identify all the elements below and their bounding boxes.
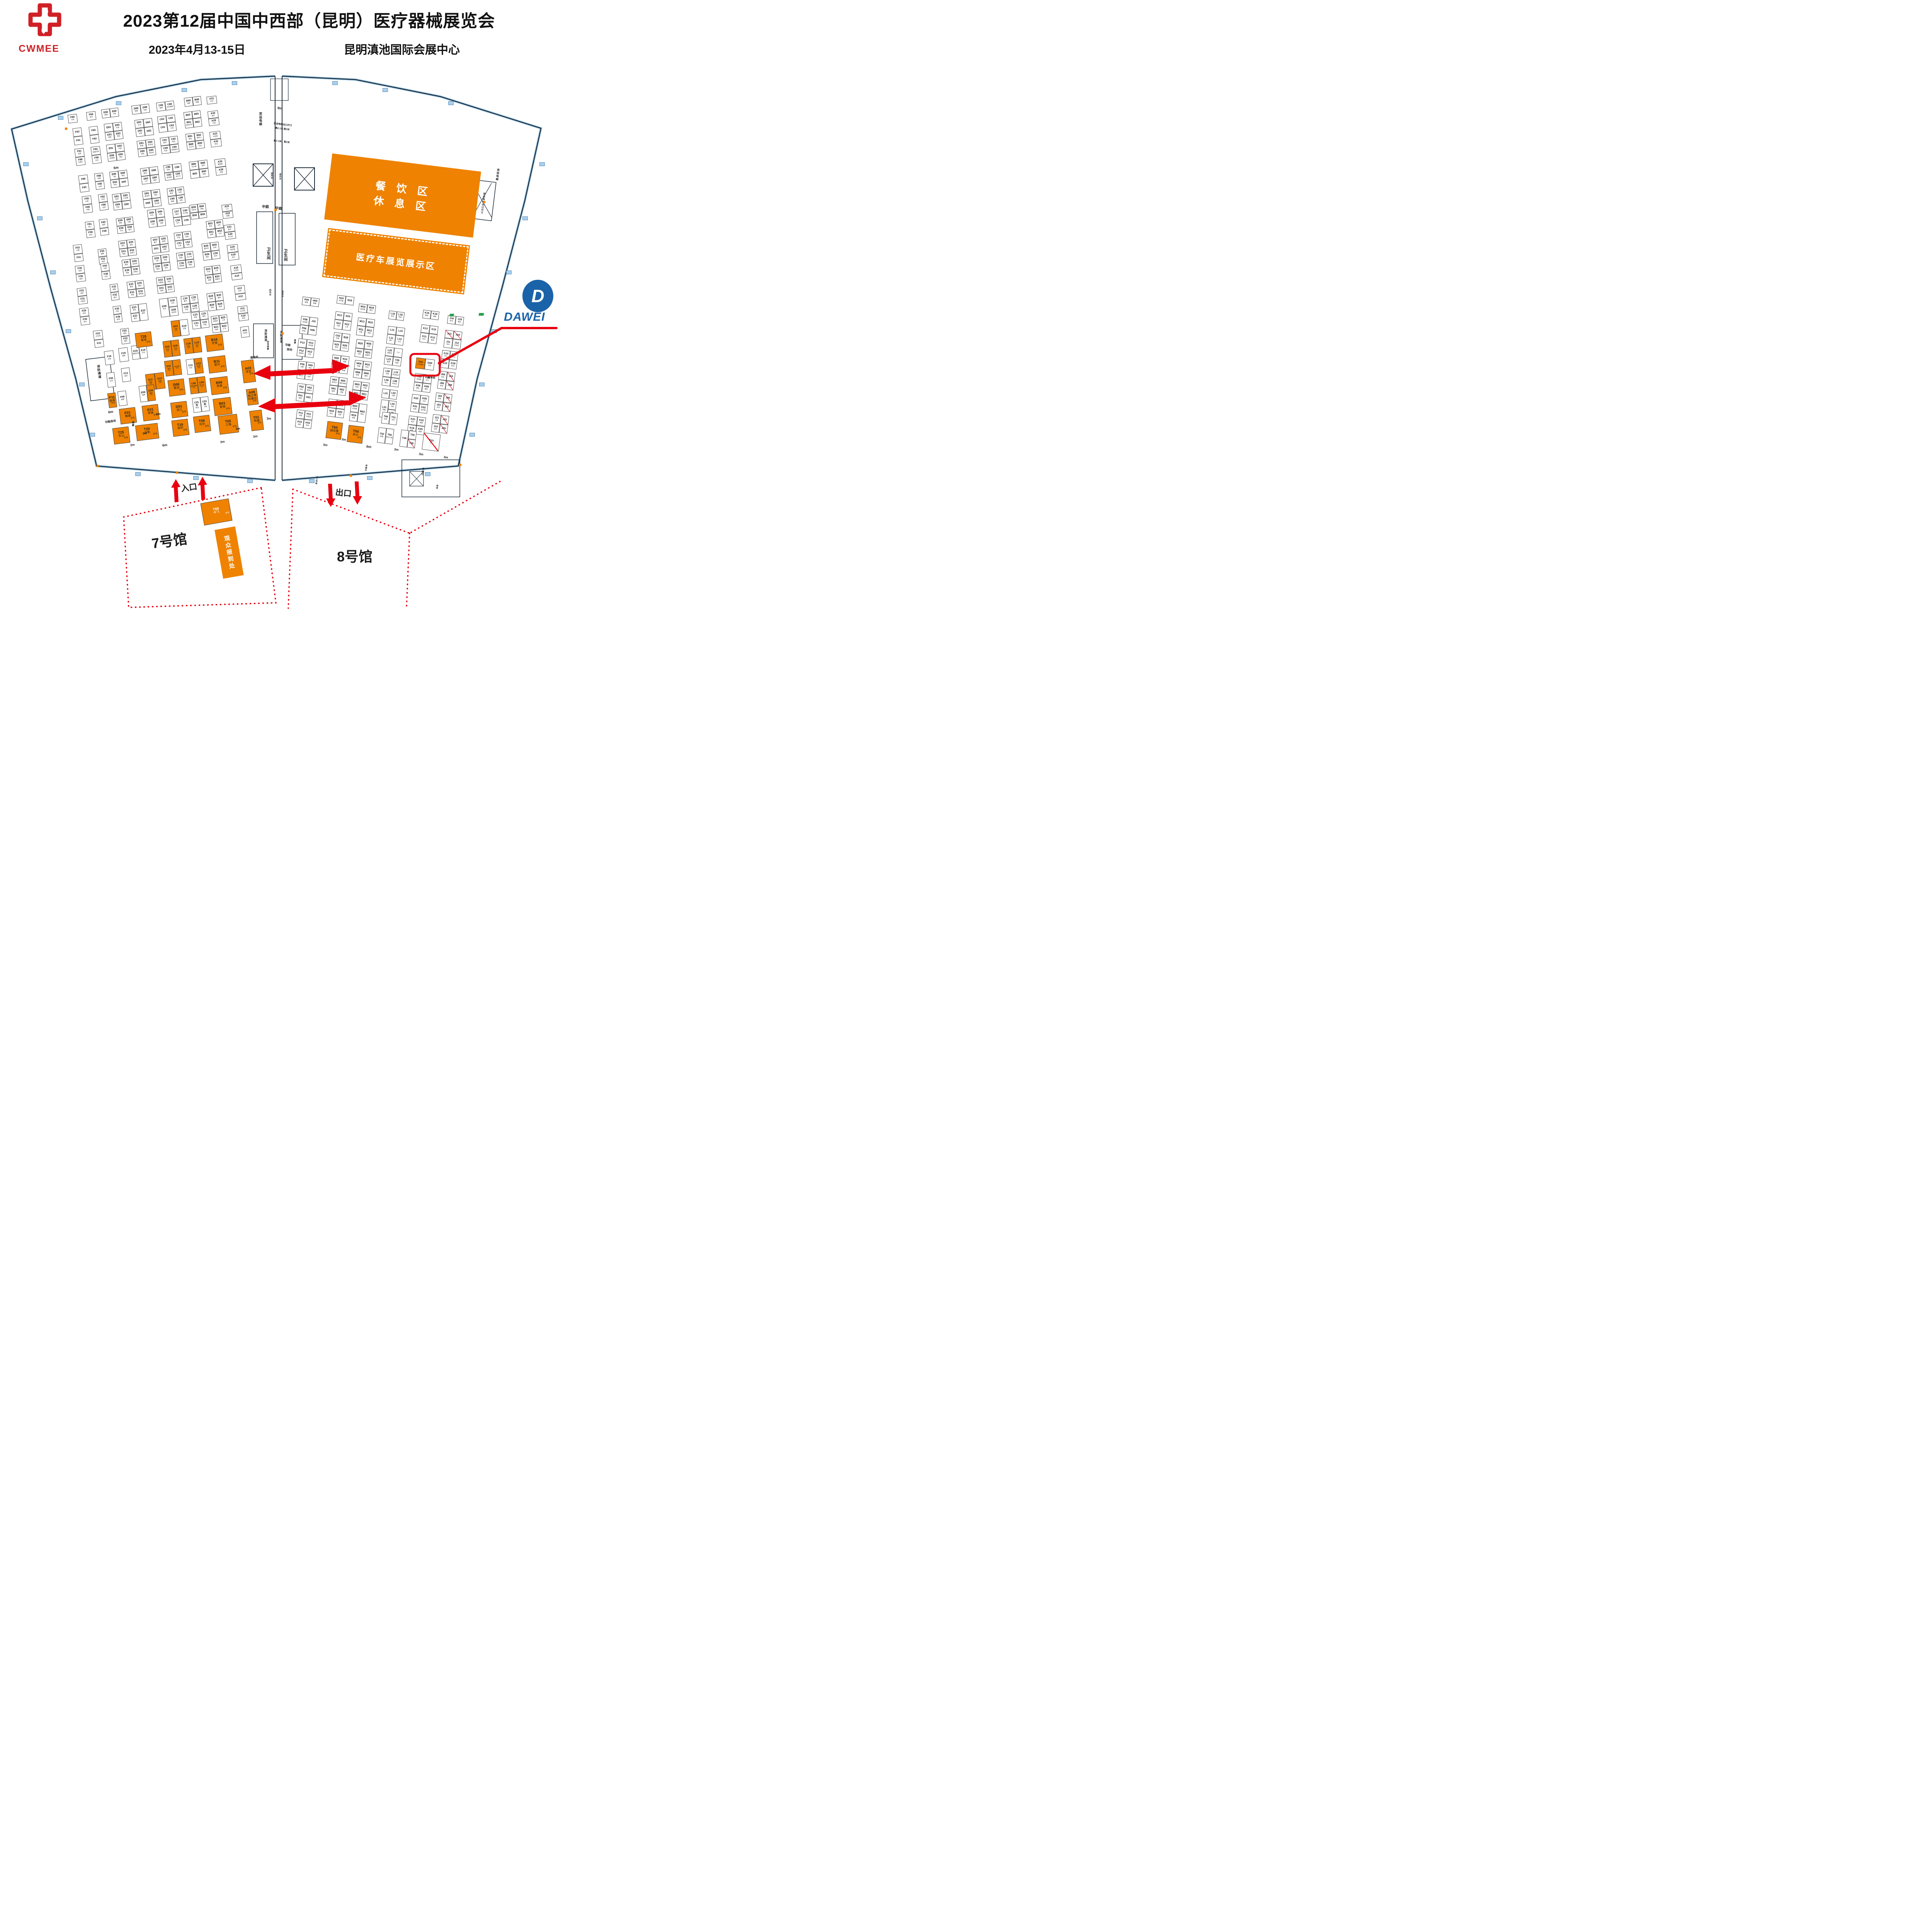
booth-cell: E52安思尔 xyxy=(128,247,137,256)
booth-block: C01左奥洁C01右千里 xyxy=(192,396,210,413)
map-label: 9m xyxy=(277,106,283,111)
booth-cell: H02新瀚光 xyxy=(305,384,314,394)
booth-block: F55康美F52瑞京 xyxy=(98,248,108,265)
booth-block: M25M26天帆M22方硕M23昌盛洁 xyxy=(354,339,373,359)
booth-cell: B21卓越 xyxy=(212,324,221,333)
booth-cell: B55全科 xyxy=(214,219,224,229)
booth-cell: C38明朗 xyxy=(185,259,195,268)
booth-cell: L09华度 xyxy=(383,367,392,378)
booth-cell: F92佑威光电 xyxy=(90,146,101,156)
booth-cell: L08利安达 xyxy=(390,378,400,388)
booth-block: F68英华 xyxy=(86,111,97,121)
booth-cell: F35瑞晶 xyxy=(110,284,119,293)
booth-cell: M22托福 xyxy=(361,382,370,391)
booth-cell: N02鸿鼎 xyxy=(337,386,347,396)
booth-cell: E82比克曼 xyxy=(121,192,130,201)
map-label: 6m xyxy=(366,445,372,449)
door-marker-icon xyxy=(232,81,237,85)
booth-block: D06医尚6*6 xyxy=(168,379,186,397)
booth-cell: J16辰丰 xyxy=(447,315,456,325)
booth-cell: F59众晟 xyxy=(82,196,92,205)
booth-cell: C23祥泰 xyxy=(190,311,200,321)
booth-block: E33惠誉E35晨伟E31京联E32博恩康 xyxy=(127,280,146,298)
booth-block: E53成武E55辰宏E51明商E52安思尔 xyxy=(118,239,137,257)
door-marker-icon xyxy=(23,162,29,166)
logo-s-gap xyxy=(43,9,46,32)
booth-cell: C89松岩 xyxy=(161,145,170,154)
booth-cell: J03美滋 xyxy=(435,393,444,402)
booth-block: C91冠邦C92翔远C89松岩C90舒普斯达 xyxy=(160,136,180,154)
booth-cell: F88神蕴 xyxy=(94,173,104,182)
booth-cell: F16宝莘 xyxy=(104,350,115,366)
wall-tick-icon xyxy=(65,128,67,130)
booth-cell: K15 xyxy=(429,325,438,334)
bottom-right-elevator-lobby xyxy=(402,460,460,497)
booth-block: L21L02汉康 xyxy=(381,389,398,400)
booth-cell: F01赛康6*6 xyxy=(119,407,137,425)
booth-block: N03奥芮济N05银虹裕赫N01蓝德N02鸿鼎 xyxy=(328,376,347,396)
booth-cell: J05 xyxy=(443,393,452,403)
booth-cell: F82天润 xyxy=(98,194,108,203)
booth-cell: E80 xyxy=(122,200,131,209)
booth-cell: C58 xyxy=(182,216,191,226)
booth-block: B86利尔康B88临安B83B85铭旭 xyxy=(189,160,209,179)
booth-cell: B68希翼 xyxy=(192,96,202,106)
booth-cell: E66美康 xyxy=(101,109,111,119)
booth-cell: G03大为医疗 xyxy=(415,357,425,369)
booth-cell: F19康泰 xyxy=(118,347,129,362)
wall-tick-icon xyxy=(97,465,99,467)
booth-cell: E92平瑞 xyxy=(115,143,125,152)
booth-cell: G20大为 xyxy=(449,351,459,361)
booth-cell: M22方硕 xyxy=(354,348,364,358)
booth-block: J13J19J11苏中J12乔安辰 xyxy=(443,330,462,349)
booth-cell: B86利尔康 xyxy=(189,161,199,170)
booth-cell: P12奥朗特 xyxy=(296,347,306,357)
event-venue: 昆明滇池国际会展中心 xyxy=(309,40,495,57)
booth-cell: F61 xyxy=(73,136,83,146)
booth-cell: M12泽呈 xyxy=(364,327,374,337)
booth-cell: C60机汽猫 xyxy=(180,207,190,217)
door-marker-icon xyxy=(58,116,63,120)
booth-cell: N06百生 xyxy=(330,363,340,373)
booth-cell: P06麦迪 xyxy=(299,325,309,335)
booth-cell: B11爱升6*6 xyxy=(207,355,227,373)
booth-cell: B22汇丰 xyxy=(220,323,229,332)
booth-block: E59博科E60大鹏E56中仓E58德光 xyxy=(116,216,135,234)
booth-cell: J08 xyxy=(445,381,454,390)
booth-block: D33杰富瑞D35医高D31诺高D32英杰华 xyxy=(156,276,175,294)
booth-cell: C56玖牛 xyxy=(173,217,183,227)
booth-cell: F65 xyxy=(88,126,99,136)
booth-cell: E56中仓 xyxy=(117,225,126,234)
map-label: 3m xyxy=(323,443,328,447)
booth-cell: C28瑞贝塔 xyxy=(190,303,200,312)
map-label: 3m xyxy=(267,417,271,420)
booth-block: E81拓恒E82比克曼E69宏安E80 xyxy=(112,192,132,210)
booth-cell: B33天海 xyxy=(204,266,213,275)
booth-block: C53天地C55奥普C51三锐C52迈骏 xyxy=(174,231,193,249)
booth-cell: F89丹弗尔 xyxy=(75,156,86,166)
booth-cell: B89谷山丰 xyxy=(186,141,196,150)
booth-block: L13L15L11高产L12公元 xyxy=(386,326,405,345)
booth-cell: P11华腾 xyxy=(296,410,305,419)
booth-cell: B50金清 xyxy=(210,241,219,251)
booth-block: B23埃斯顿B25三申B21卓越B22汇丰 xyxy=(211,315,229,333)
booth-cell: F29安信 xyxy=(79,308,89,317)
booth-block: A11红太阳A10阳坤 xyxy=(237,306,249,321)
booth-block: T60诚信康6*6 xyxy=(325,421,343,440)
booth-cell: A10阳坤 xyxy=(238,313,249,321)
booth-cell: D58为臻 xyxy=(156,217,166,227)
booth-block: F13星达 xyxy=(121,367,131,382)
booth-cell: K01名德 xyxy=(410,403,420,413)
door-marker-icon xyxy=(492,329,497,333)
medical-vehicle-label: 医疗车展览展示区 xyxy=(355,250,437,272)
booth-cell: A15 xyxy=(231,272,243,280)
booth-block: F88神蕴F85优硕 xyxy=(94,173,105,190)
booth-cell: B30雅思 xyxy=(214,292,224,301)
booth-cell: E35晨伟 xyxy=(135,280,144,289)
booth-cell: F36普昂 xyxy=(76,273,86,282)
booth-cell: N08海博 xyxy=(339,364,349,374)
booth-block: D11普东3*6新光维3*6 xyxy=(164,359,182,377)
booth-cell: F53乐康 xyxy=(73,244,83,255)
booth-cell: H11科智达 xyxy=(304,410,313,420)
booth-block: N13N15N11华复N12众泽 xyxy=(333,311,352,331)
booth-cell: F30杰西 xyxy=(113,306,122,315)
booth-block: F91英泰F89丹弗尔 xyxy=(74,148,85,166)
booth-cell: C90舒普斯达 xyxy=(170,144,179,153)
booth-block: T52丽晶T50衡水亿泰 xyxy=(377,427,395,445)
booth-cell: K09亮美聚 xyxy=(414,373,424,383)
booth-cell: E23瑞禾 xyxy=(129,304,139,314)
booth-cell: F51 xyxy=(74,253,83,262)
door-marker-icon xyxy=(479,383,485,386)
map-label: 3m xyxy=(236,427,240,430)
booth-block: T05三强6*6 xyxy=(218,414,239,435)
booth-cell: K22泰捷 xyxy=(417,417,426,427)
booth-cell: E32博恩康 xyxy=(136,288,145,297)
booth-cell: C26中皇 xyxy=(182,304,191,313)
booth-block: A33众家康A32梦远 xyxy=(209,131,222,147)
booth-block: F16宝莘 xyxy=(104,350,115,366)
wall-tick-icon xyxy=(176,471,178,474)
booth-cell: C21洋生 xyxy=(192,320,201,330)
booth-block: D63大洋D65D61永泰D62 xyxy=(134,118,154,137)
booth-cell: N16派可斯 xyxy=(337,295,346,304)
door-marker-icon xyxy=(66,329,71,333)
booth-cell: P13 xyxy=(298,338,307,348)
booth-cell: E55辰宏 xyxy=(126,239,136,248)
booth-cell: L12公元 xyxy=(395,335,404,346)
booth-cell: B23埃斯顿 xyxy=(211,315,220,325)
booth-block: A03泽宝3*9 xyxy=(241,359,256,383)
booth-cell: C50云心电 xyxy=(184,251,194,260)
booth-cell: F23正生瑞 xyxy=(93,330,103,340)
booth-cell: J18康达 xyxy=(455,316,464,325)
booth-cell: T28君缘6*6 xyxy=(135,332,153,348)
booth-cell: D82锐志 xyxy=(151,189,161,199)
booth-cell: D53春升 xyxy=(151,236,160,246)
booth-cell: C68中科精研 xyxy=(165,100,175,111)
wall-tick-icon xyxy=(483,201,485,203)
booth-cell: F56奥生 xyxy=(86,229,95,238)
booth-cell: N03奥芮济 xyxy=(330,376,339,386)
door-marker-icon xyxy=(522,216,528,220)
booth-cell: D66康威 xyxy=(131,105,141,115)
booth-cell: D91思蜀 xyxy=(137,140,146,149)
booth-cell: A24夏蕾 xyxy=(222,211,233,219)
booth-cell: T20白象6*9 xyxy=(135,423,159,441)
hall7-dotted-boundary xyxy=(124,488,276,607)
booth-block: C16卓昱3*6C19顶点3*6 xyxy=(184,337,202,354)
booth-block: T20白象6*9 xyxy=(135,423,159,441)
booth-cell: P01荣煜 xyxy=(296,392,305,401)
booth-cell: D38恒丰 xyxy=(162,262,171,271)
booth-cell: K02泰乐康 xyxy=(418,404,428,414)
map-label: 6m xyxy=(114,166,119,170)
booth-cell: B31高通 xyxy=(205,274,214,284)
booth-cell: M10虹云 xyxy=(362,361,372,371)
booth-cell: N01蓝德 xyxy=(328,385,338,395)
booth-cell: C19顶点3*6 xyxy=(192,337,202,353)
booth-cell: B91美伦 xyxy=(185,133,195,142)
booth-cell: N05银虹裕赫 xyxy=(338,377,348,387)
booth-cell: N21海源 xyxy=(328,398,337,408)
booth-cell: B36帕科 xyxy=(202,251,212,261)
fire-corridor-room-left xyxy=(253,324,274,358)
booth-cell: D33杰富瑞 xyxy=(156,277,165,286)
booth-cell: L18伊诺 xyxy=(396,311,405,321)
map-label: 货运电梯 xyxy=(259,112,262,126)
booth-cell: D28易世恒 xyxy=(169,306,179,316)
booth-block: P08欣佳盟J15P06麦迪H06 xyxy=(299,316,318,335)
booth-cell: M03绿海 xyxy=(352,381,362,391)
map-label: 3m xyxy=(444,456,448,459)
floorplan-walls-layer xyxy=(0,0,563,610)
hall8-dotted-boundary xyxy=(288,481,500,608)
booth-block: K03K05吕氏K01名德K02泰乐康 xyxy=(410,394,429,413)
map-label: 3m xyxy=(253,435,258,438)
booth-cell: E81拓恒 xyxy=(112,193,122,202)
booth-block: C63C65C61C62立信 xyxy=(157,114,177,133)
booth-cell: B28爱德 xyxy=(216,300,225,310)
map-label: 现场储藏 xyxy=(267,341,269,350)
booth-cell: J22 xyxy=(440,415,449,425)
booth-cell: B62 xyxy=(193,117,202,128)
booth-cell: B29安康 xyxy=(206,293,216,302)
booth-block: A30澳环A29乐意 xyxy=(207,110,219,126)
booth-cell: F90五岳 xyxy=(92,155,102,164)
booth-cell: D81康派特 xyxy=(142,190,152,200)
booth-cell: C52迈骏 xyxy=(183,239,192,248)
booth-cell: E83绿谷 xyxy=(110,179,120,188)
booth-cell: J11苏中 xyxy=(443,338,453,349)
booth-block: F81爱心F56奥生 xyxy=(85,221,96,238)
booth-cell: C51三锐 xyxy=(175,240,184,249)
booth-cell: E91 xyxy=(106,144,116,153)
booth-cell: J21力康 xyxy=(432,414,441,424)
booth-cell: F66中哲 xyxy=(68,114,78,124)
booth-block: E39隽秀E50金金砖E36悦锐E38伊格尔 xyxy=(122,258,141,276)
booth-cell: F11森美3*6 xyxy=(107,393,117,408)
booth-cell: F91英泰 xyxy=(74,148,85,158)
exit-label: 出口 xyxy=(335,486,352,499)
booth-cell: T05三强6*6 xyxy=(218,414,239,435)
booth-cell: K16康安 xyxy=(422,310,432,319)
booth-cell: C39奥格 xyxy=(176,252,185,261)
booth-block: D01滨江6*6 xyxy=(170,401,189,418)
booth-block: T336*6 xyxy=(422,432,440,451)
booth-block: F23正生瑞F21 xyxy=(93,330,104,348)
booth-cell: J06安泰 xyxy=(437,379,446,389)
booth-cell: M21嘉望 xyxy=(359,391,369,400)
booth-block: A16史克斯A15 xyxy=(230,264,243,280)
booth-block: F82天润F80圣恒 xyxy=(98,194,109,211)
booth-block: T66泽泰T31玖环 xyxy=(381,412,398,425)
booth-block: E23瑞禾E22唐邦E21蓝仕 xyxy=(129,303,148,322)
spine-top-room xyxy=(270,79,288,100)
booth-cell: E31京联 xyxy=(128,289,137,298)
booth-cell: D60时福 xyxy=(155,208,165,218)
map-label: 卫生间 xyxy=(283,249,287,262)
booth-cell: K03 xyxy=(411,394,421,404)
booth-block: C11中红C13森茂3*6 xyxy=(186,358,204,375)
booth-cell: D06医尚6*6 xyxy=(168,379,186,397)
booth-block: D86鼎道D88D83三妙D85维安 xyxy=(140,166,160,184)
booth-cell: B61迪怡疗护 xyxy=(184,119,194,129)
booth-cell: K12格宜 xyxy=(428,333,437,344)
booth-cell: D63大洋 xyxy=(134,119,144,129)
restroom-right xyxy=(279,213,295,265)
booth-cell: D65 xyxy=(143,118,153,128)
booth-cell: L20华鲁 xyxy=(388,400,397,410)
booth-block: J03美滋J05J01新艺J02 xyxy=(434,393,452,412)
booth-cell: F55康美 xyxy=(98,248,107,257)
booth-cell: F68英华 xyxy=(86,111,97,121)
exhibition-floor-plan: CWMEE 2023第12届中国中西部（昆明）医疗器械展览会 2023年4月13… xyxy=(0,0,563,610)
booth-cell: F31中美达 xyxy=(78,296,88,305)
booth-cell: M23昌盛洁 xyxy=(363,349,372,359)
booth-cell: E89医麦德 xyxy=(107,152,117,162)
booth-cell: D89拓晟 xyxy=(138,148,147,157)
booth-block: E63E65华润E61湘智E62博达 xyxy=(104,122,123,141)
booth-cell: E90豫北 xyxy=(116,151,126,161)
booth-cell: T36 xyxy=(408,430,417,440)
booth-block: F09康博 xyxy=(117,391,128,406)
booth-cell: C80迈克 xyxy=(176,194,185,204)
booth-cell: H13珂深威 xyxy=(306,339,316,349)
booth-cell: N25迈兰达 xyxy=(340,342,349,352)
booth-cell: J12乔安辰 xyxy=(452,339,461,350)
door-marker-icon xyxy=(135,472,141,476)
booth-cell: E60大鹏 xyxy=(124,216,134,225)
map-label: 3m xyxy=(156,412,161,416)
booth-block: N09乐中行N10亚能N06百生N08海博 xyxy=(330,354,349,374)
booth-cell: P10保创 xyxy=(295,418,304,428)
booth-block: T16翔宇6*6 xyxy=(172,419,190,437)
booth-cell: D80净为康 xyxy=(152,197,162,207)
booth-cell: E85 xyxy=(119,178,129,187)
booth-cell: J09友创 xyxy=(438,371,447,381)
booth-block: B33天海B35上禾B31高通B32康睿达 xyxy=(204,265,222,284)
booth-cell: A03泽宝3*9 xyxy=(241,359,256,383)
booth-cell: E50金金砖 xyxy=(130,258,139,267)
map-label: 3m xyxy=(220,440,225,444)
map-label: 卫生间 xyxy=(266,247,270,260)
booth-cell: C55奥普 xyxy=(182,231,191,240)
booth-cell: B83 xyxy=(190,169,200,179)
booth-cell: C59航天 xyxy=(211,250,221,260)
booth-block: L25海德润九九L23喜泰T29遥森 xyxy=(384,347,403,366)
door-marker-icon xyxy=(79,383,85,386)
booth-cell: E88恒佳 xyxy=(118,170,128,179)
booth-cell: L10安信纳米 xyxy=(391,369,401,379)
booth-cell: F63 xyxy=(72,128,82,137)
booth-block: A35辐瑞森A28灵康 xyxy=(214,158,227,175)
booth-block: M13M15M11贝普M12泽呈 xyxy=(356,317,375,337)
booth-cell: M16爱优康 xyxy=(358,303,368,313)
booth-cell: A32梦远 xyxy=(210,138,222,147)
booth-cell: F69涞富 xyxy=(83,204,93,214)
booth-cell: B92康伊九 xyxy=(194,132,204,141)
booth-cell: B66瑞泰 xyxy=(184,97,194,107)
booth-cell: F22蜀科 xyxy=(121,336,130,345)
door-marker-icon xyxy=(332,81,338,85)
booth-cell: D85维安 xyxy=(150,174,160,184)
booth-cell: K11欧太 xyxy=(419,332,429,343)
booth-block: J21力康J22J19迈邦J20 xyxy=(431,414,449,434)
booth-cell: A01艾克松 xyxy=(240,326,250,338)
booth-cell: H10深创 xyxy=(303,419,312,429)
booth-block: F19康泰 xyxy=(118,347,129,362)
booth-cell: F28延陵 xyxy=(114,314,122,323)
map-label: 6m xyxy=(162,443,168,447)
booth-cell: K18福民 xyxy=(430,311,440,320)
booth-cell: N09乐中行 xyxy=(332,354,341,364)
booth-cell: F13星达 xyxy=(121,367,131,382)
booth-cell: J19 xyxy=(453,331,462,340)
booth-block: T01伟瀚3*9 xyxy=(249,410,264,431)
booth-cell: J01新艺 xyxy=(434,401,443,411)
booth-cell: K13 xyxy=(420,324,430,333)
booth-cell: M25 xyxy=(355,339,365,349)
booth-cell: J20 xyxy=(439,424,448,434)
booth-cell: E63 xyxy=(104,123,114,133)
booth-cell: E58德光 xyxy=(125,224,134,233)
booth-cell: D92邦安宝 xyxy=(145,139,155,148)
booth-cell: F33深创 xyxy=(77,287,87,297)
booth-block: F25健和F22蜀科 xyxy=(120,328,131,344)
booth-cell: T336*6 xyxy=(422,432,440,451)
booth-cell: B53易享 xyxy=(206,220,215,230)
booth-cell: M19梵晨 xyxy=(349,412,358,422)
booth-block: C86百欧C88C83舒信康C85龙之杰 xyxy=(163,163,183,180)
booth-cell: D88 xyxy=(149,166,158,175)
wall-tick-icon xyxy=(281,332,284,335)
door-marker-icon xyxy=(309,479,315,483)
door-marker-icon xyxy=(383,88,388,92)
booth-cell: J10 xyxy=(446,372,456,381)
booth-cell: C82先锋 xyxy=(175,186,184,196)
booth-block: C30嘉宇C29乐宝C26中皇C28瑞贝塔 xyxy=(180,294,199,313)
door-marker-icon xyxy=(448,101,454,105)
booth-cell: F21 xyxy=(94,339,104,348)
booth-cell: E65华润 xyxy=(112,122,122,131)
booth-cell: C85龙之杰 xyxy=(173,171,183,180)
booth-block: J09友创J10J06安泰J08 xyxy=(437,371,455,391)
